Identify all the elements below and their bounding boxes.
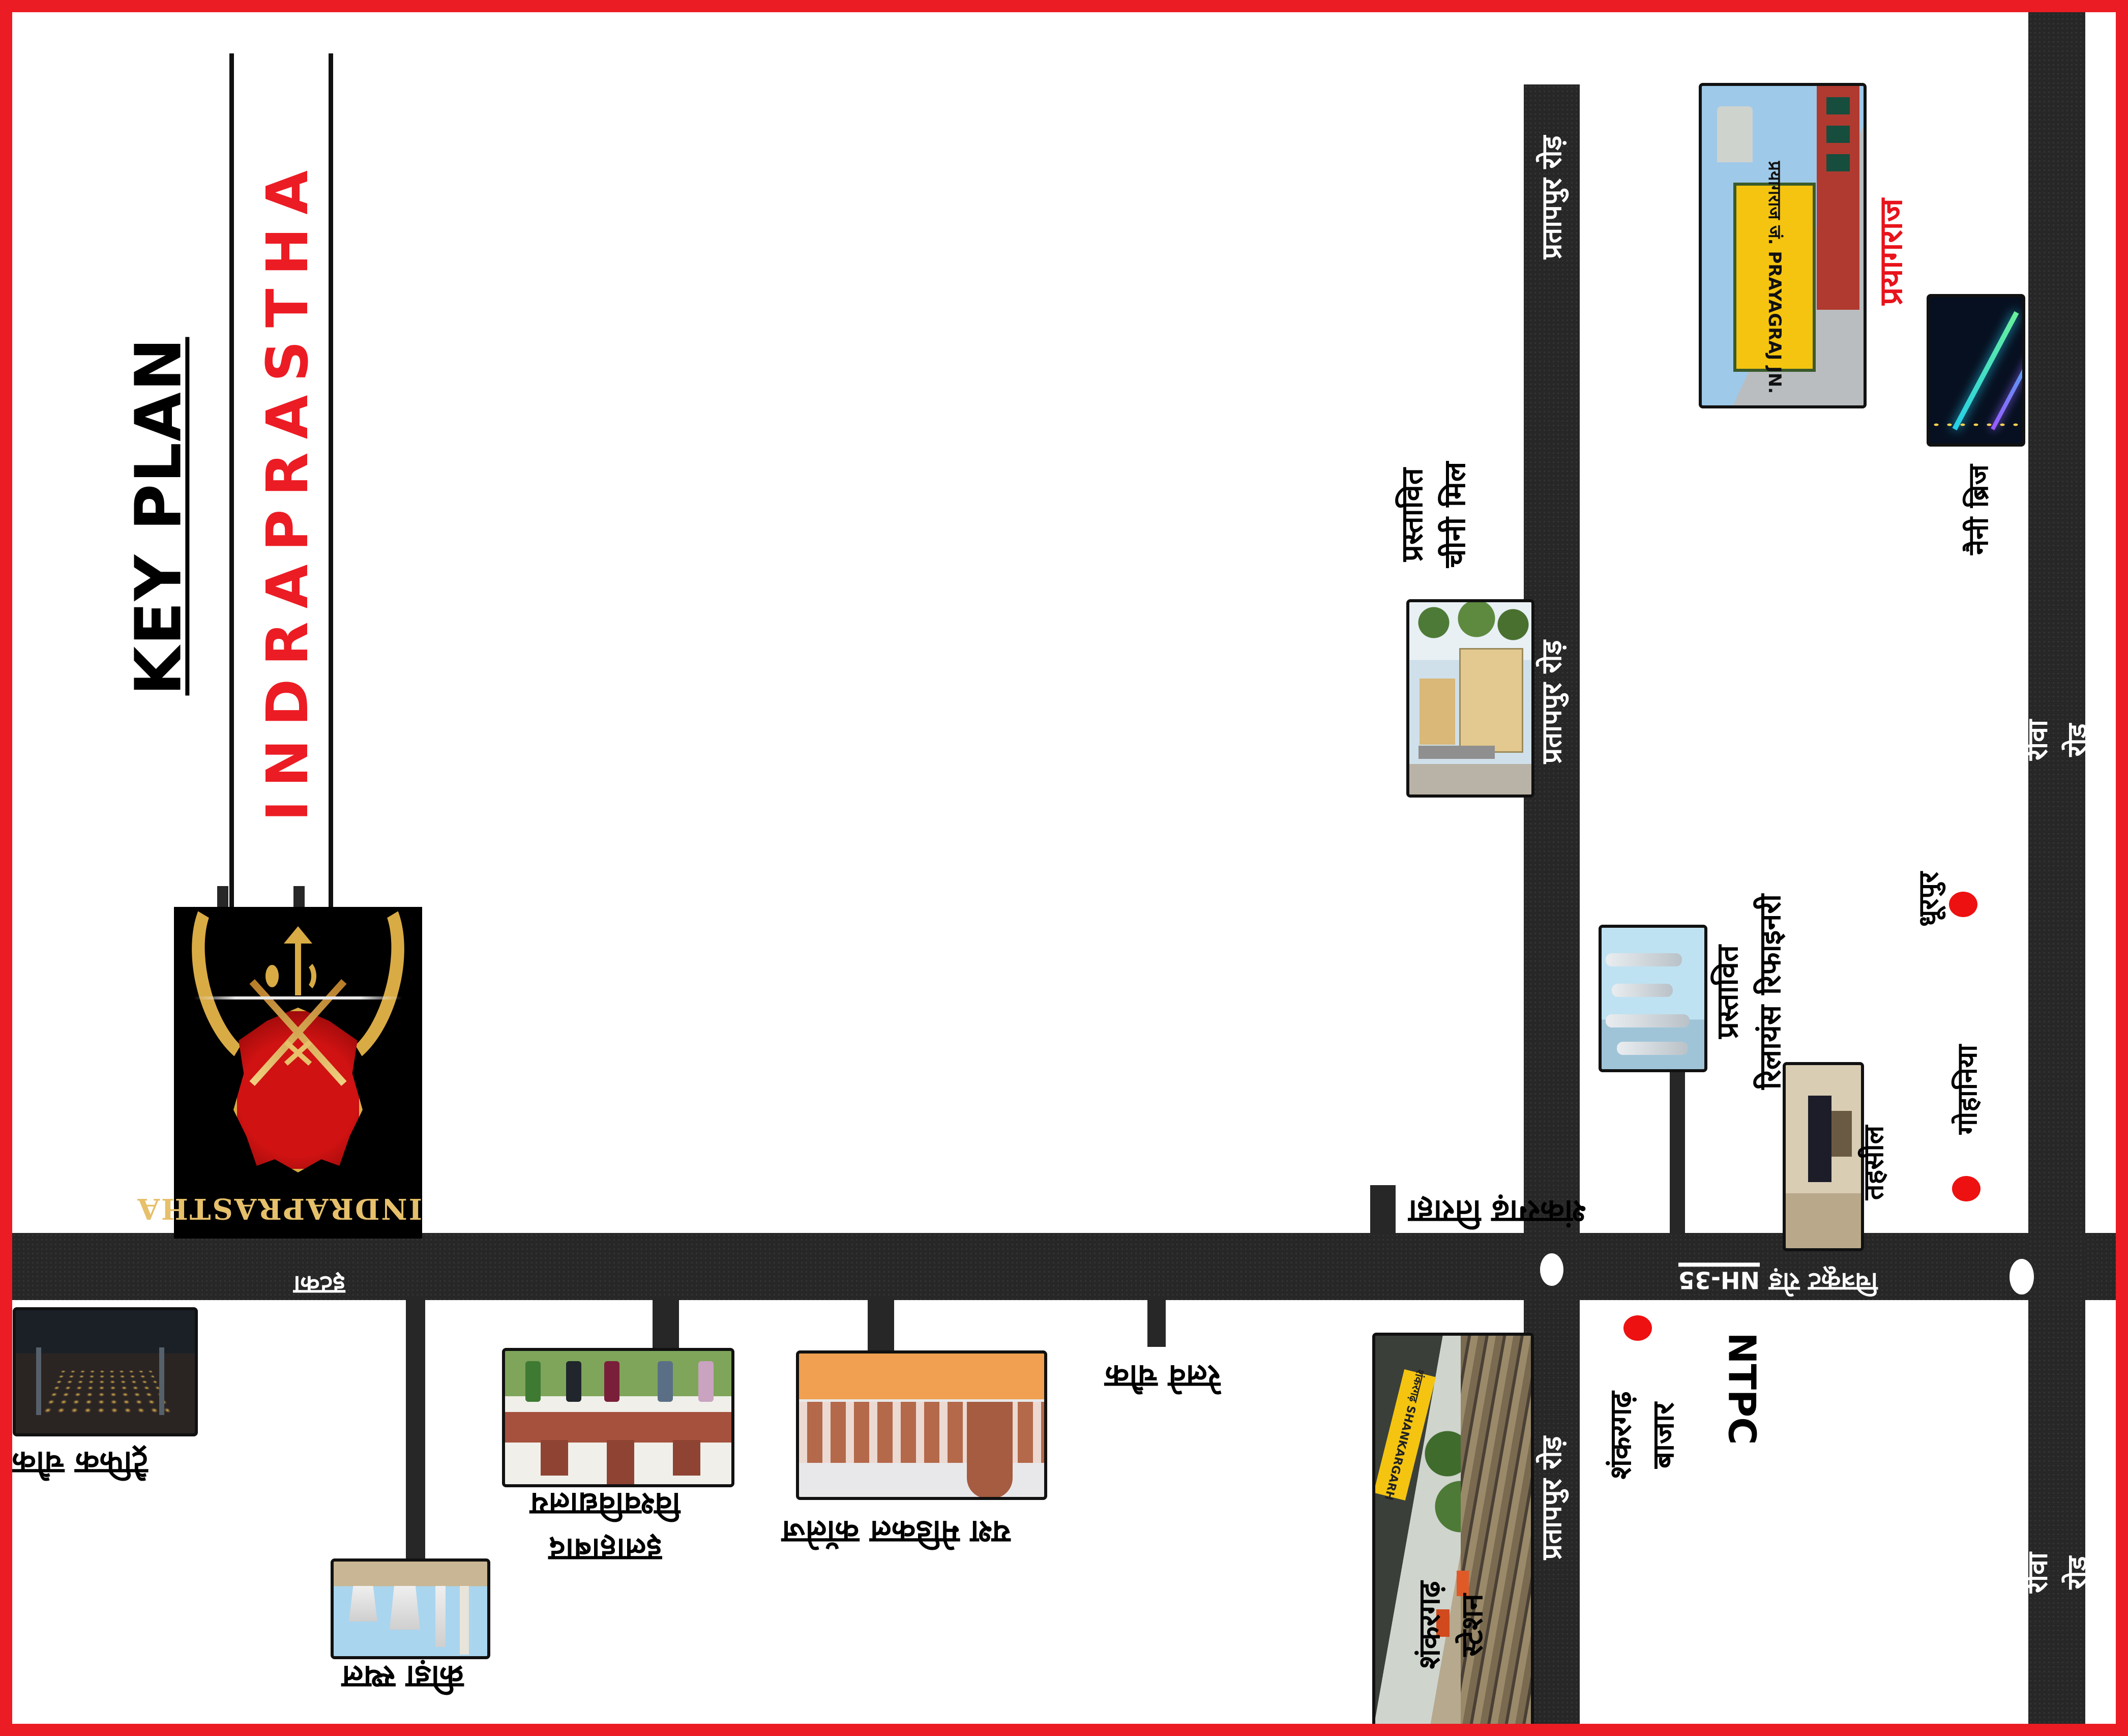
chitrakoot-road-label: चित्रकूट रोड़: [1769, 1263, 1877, 1301]
prayagraj-junction-photo: प्रयागराज जं. PRAYAGRAJ JN.: [1699, 83, 1867, 408]
railway-tracks-icon: [1461, 1336, 1531, 1728]
sports-ground-label: क्रीड़ा स्थल: [342, 1654, 463, 1700]
tower-structure: [435, 1586, 446, 1647]
market-lights-icon: [40, 1369, 170, 1413]
water-tank-icon: [1717, 106, 1753, 162]
medical-college-label: यश मेडिकल कॉलेज: [782, 1509, 1011, 1555]
person-icon: [698, 1361, 714, 1402]
logo-brand-text: INDRAPRASTHA: [174, 1192, 422, 1225]
traffic-chowk-label: ट्रैफिक चौक: [12, 1440, 147, 1486]
sugar-mill-photo: [1406, 599, 1534, 798]
street: [1409, 764, 1531, 795]
pratappur-road-label-bottom: प्रतापपुर रोड़: [1532, 1436, 1572, 1560]
refinery-tower-icon: [1606, 953, 1682, 966]
station-name-board: प्रयागराज जं. PRAYAGRAJ JN.: [1733, 183, 1816, 372]
stub-university: [653, 1298, 679, 1353]
nh35-label: NH-35: [1678, 1263, 1760, 1297]
university-label: इलाहाबाद विश्वविद्यालय: [530, 1481, 681, 1573]
divider-rule-right: [329, 53, 333, 907]
person-icon: [566, 1361, 581, 1402]
medical-college-photo: [796, 1350, 1047, 1500]
sports-ground-photo: [331, 1558, 490, 1659]
gohaniya-label: गोहानिया: [1947, 1045, 1987, 1134]
ntpc-label: NTPC: [1714, 1333, 1768, 1445]
tower-structure: [390, 1586, 420, 1630]
naini-bridge-label: नैनी ब्रिज: [1959, 464, 1998, 555]
building-tower: [541, 1440, 568, 1476]
stub-college: [868, 1298, 894, 1353]
stub-refinery: [1670, 1062, 1685, 1235]
shankargarh-station-label: शंकरगढ़ स्टेशन: [1408, 1581, 1493, 1669]
junction-dot-left: [1540, 1253, 1563, 1286]
ornament-line: [194, 996, 402, 999]
refinery-tower-icon: [1612, 984, 1673, 997]
trident-icon: [295, 939, 301, 995]
stub-tiraha: [1370, 1185, 1396, 1235]
reliance-refinery-label: प्रस्तावित रिलायंस रिफाइनरी: [1706, 894, 1791, 1090]
traffic-chowk-photo: [13, 1307, 198, 1436]
prayagraj-label: प्रयागराज: [1868, 198, 1914, 305]
dhurpur-dot: [1949, 892, 1977, 917]
indraprastha-logo: INDRAPRASTHA: [174, 907, 422, 1239]
village-label: इटका: [293, 1267, 345, 1304]
allahabad-university-photo: [502, 1348, 734, 1487]
bazaar-dot: [1623, 1315, 1652, 1341]
gohaniya-dot: [1952, 1176, 1981, 1201]
shankargarh-tiraha-label: शंकरगढ़ तिराहा: [1409, 1189, 1586, 1234]
rewa-road-label-lower: रीवा रोड: [2018, 1538, 2098, 1608]
station-board-text: प्रयागराज जं. PRAYAGRAJ JN.: [1764, 161, 1785, 394]
building-tower: [673, 1440, 700, 1476]
university-building: [505, 1412, 731, 1443]
train-icon: [1817, 86, 1859, 310]
bridge-cables-icon: [1991, 320, 2025, 430]
reliance-refinery-photo: [1599, 925, 1707, 1072]
dhurpur-label: धूरपुर: [1909, 872, 1948, 927]
person-icon: [525, 1361, 541, 1402]
key-plan-map: KEY PLAN INDRAPRASTHA INDRAPRASTHA प्रया…: [0, 0, 2128, 1736]
junction-dot-right: [2009, 1259, 2034, 1294]
trees-icon: [1409, 602, 1531, 643]
railway-chowk-label: रेलवे चौक: [1105, 1354, 1221, 1399]
page-title: KEY PLAN: [112, 337, 204, 696]
shankargarh-bazaar-label: शंकरगढ़ बाजार: [1599, 1391, 1684, 1479]
logo-emblem-icon: INDRAPRASTHA: [174, 907, 422, 1239]
tehsil-signboard: [1808, 1096, 1831, 1182]
road-rewa: [2028, 12, 2085, 1725]
building-window: [1831, 1111, 1852, 1157]
tehsil-label: तहसील: [1854, 1126, 1894, 1200]
person-icon: [604, 1361, 619, 1402]
building-tower: [607, 1440, 634, 1487]
tower-structure: [349, 1586, 377, 1622]
shankargarh-station-photo: शंकरगढ़ SHANKARGARH: [1372, 1333, 1534, 1731]
brand-title: INDRAPRASTHA: [247, 157, 329, 821]
stub-sports-ground: [406, 1298, 425, 1561]
refinery-tower-icon: [1617, 1042, 1688, 1055]
tower-structure: [460, 1586, 469, 1655]
pratappur-road-label-mid: प्रतापपुर रोड़: [1532, 640, 1572, 764]
stub-railway-chowk: [1147, 1298, 1166, 1347]
naini-bridge-photo: [1927, 294, 2025, 447]
bridge-lights-icon: [1930, 421, 2022, 428]
bridge-cables-icon: [1953, 311, 2019, 430]
chimney-icon: [1418, 746, 1495, 759]
divider-rule-left: [229, 53, 234, 907]
pole-icon: [36, 1347, 41, 1415]
college-round-tower: [967, 1402, 1013, 1498]
pole-icon: [159, 1347, 164, 1415]
mill-building: [1420, 679, 1455, 745]
rewa-road-label-upper: रीवा रोड: [2018, 705, 2098, 775]
pratappur-road-label-top: प्रतापपुर रोड़: [1532, 136, 1572, 259]
person-icon: [658, 1361, 673, 1402]
sugar-mill-label: प्रस्तावित चीनी मिल: [1391, 462, 1476, 568]
refinery-tower-icon: [1606, 1014, 1690, 1027]
tehsil-photo: [1783, 1062, 1864, 1251]
mill-building: [1459, 648, 1523, 753]
